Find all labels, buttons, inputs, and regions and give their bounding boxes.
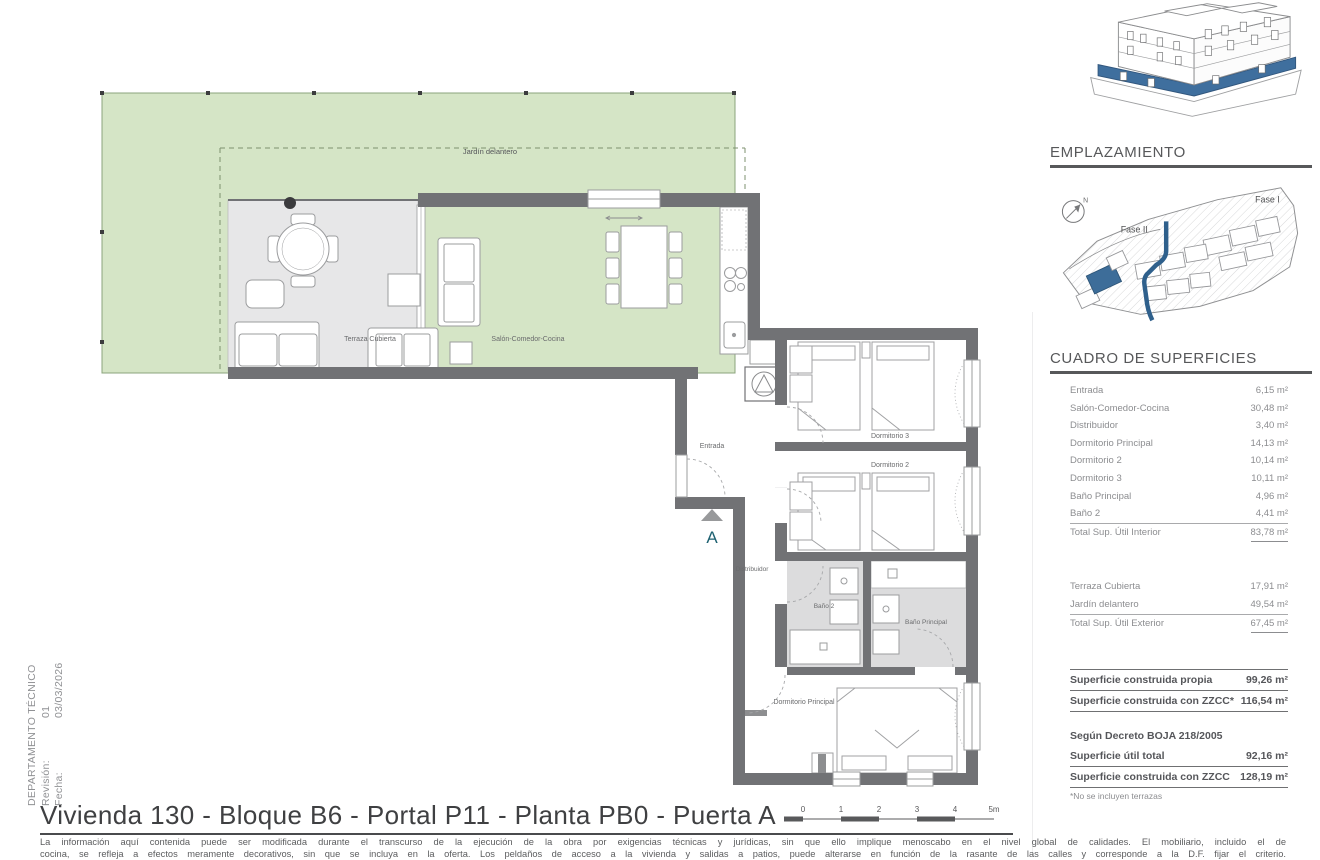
terrace-sofa — [235, 322, 319, 370]
stamp-revision: Revisión:01 — [40, 592, 54, 806]
surface-label: Entrada — [1070, 382, 1103, 400]
dorm3-furniture — [790, 342, 934, 430]
dorm2-furniture — [790, 473, 934, 550]
surface-label: Dormitorio 2 — [1070, 452, 1122, 470]
surface-value: 67,45 m² — [1251, 615, 1289, 634]
surface-label: Superficie útil total — [1070, 746, 1165, 766]
decreto-title: Según Decreto BOJA 218/2005 — [1070, 726, 1288, 746]
scale-tick: 1 — [839, 805, 844, 814]
superficies-title: CUADRO DE SUPERFICIES — [1050, 350, 1312, 374]
sidebar: EMPLAZAMIENTO — [1048, 0, 1314, 801]
surfaces-footnote: *No se incluyen terrazas — [1070, 791, 1288, 801]
surface-row: Dormitorio Principal14,13 m² — [1070, 435, 1288, 453]
content-divider — [1032, 312, 1033, 857]
revision-label: Revisión: — [40, 718, 54, 806]
page-title: Vivienda 130 - Bloque B6 - Portal P11 - … — [40, 800, 776, 831]
surface-value: 6,15 m² — [1256, 382, 1288, 400]
stamp-date: Fecha:03/03/2026 — [53, 592, 67, 806]
room-label-salon: Salón-Comedor-Cocina — [491, 336, 564, 343]
surface-label: Superficie construida con ZZCC — [1070, 767, 1230, 787]
surface-value: 10,14 m² — [1251, 452, 1289, 470]
scale-tick: 4 — [953, 805, 958, 814]
revision-stamp: DEPARTAMENTO TÉCNICO Revisión:01 Fecha:0… — [26, 592, 67, 806]
room-label-bano-principal: Baño Principal — [905, 619, 947, 626]
constructed-surface-block: Superficie construida propia99,26 m² Sup… — [1070, 669, 1288, 712]
date-label: Fecha: — [53, 718, 67, 806]
surface-label: Superficie construida con ZZCC* — [1070, 691, 1234, 711]
column-marker — [284, 197, 296, 209]
surface-label: Dormitorio 3 — [1070, 470, 1122, 488]
surface-label: Baño Principal — [1070, 488, 1131, 506]
kitchen-counter — [720, 207, 748, 354]
emplazamiento-title: EMPLAZAMIENTO — [1050, 144, 1312, 168]
site-map: N Fase I Fase II — [1048, 172, 1314, 340]
entrance-marker: A — [701, 509, 723, 547]
surface-row: Dormitorio 310,11 m² — [1070, 470, 1288, 488]
surface-value: 17,91 m² — [1251, 578, 1289, 596]
surface-value: 92,16 m² — [1246, 746, 1288, 766]
exterior-total-row: Total Sup. Útil Exterior67,45 m² — [1070, 614, 1288, 634]
dining-table — [606, 226, 682, 308]
surface-value: 30,48 m² — [1251, 400, 1289, 418]
scale-tick: 2 — [877, 805, 882, 814]
entrance-door-leaf — [676, 455, 687, 497]
interior-total-row: Total Sup. Útil Interior83,78 m² — [1070, 523, 1288, 543]
surface-label: Total Sup. Útil Interior — [1070, 524, 1161, 543]
disclaimer: La información aquí contenida puede ser … — [40, 836, 1286, 860]
title-rule — [40, 833, 1013, 835]
bathrooms — [787, 561, 966, 667]
room-label-distribuidor: Distribuidor — [736, 566, 770, 573]
room-label-terraza: Terraza Cubierta — [344, 336, 396, 343]
surface-label: Dormitorio Principal — [1070, 435, 1153, 453]
decreto-row: Superficie útil total92,16 m² — [1070, 746, 1288, 767]
surface-value: 99,26 m² — [1246, 670, 1288, 690]
disclaimer-line1: La información aquí contenida puede ser … — [40, 836, 1286, 848]
surface-row: Distribuidor3,40 m² — [1070, 417, 1288, 435]
revision-value: 01 — [40, 706, 52, 718]
surface-label: Baño 2 — [1070, 505, 1100, 523]
surface-label: Jardín delantero — [1070, 596, 1139, 614]
surface-label: Salón-Comedor-Cocina — [1070, 400, 1169, 418]
room-label-bano2: Baño 2 — [814, 603, 835, 610]
floor-plan: A Jardín delantero Terraza Cubierta Saló… — [100, 90, 1040, 805]
room-label-dormitorio2: Dormitorio 2 — [871, 462, 909, 469]
scale-tick: 0 — [801, 805, 806, 814]
constructed-row: Superficie construida propia99,26 m² — [1070, 670, 1288, 691]
fase2-label: Fase II — [1121, 224, 1148, 234]
surface-row: Dormitorio 210,14 m² — [1070, 452, 1288, 470]
disclaimer-line2: cocina, se refleja a efectos meramente d… — [40, 848, 1286, 860]
north-compass-icon: N — [1062, 198, 1088, 223]
surface-value: 4,96 m² — [1256, 488, 1288, 506]
stamp-department: DEPARTAMENTO TÉCNICO — [26, 592, 40, 806]
decreto-row: Superficie construida con ZZCC128,19 m² — [1070, 767, 1288, 788]
surface-label: Terraza Cubierta — [1070, 578, 1140, 596]
surface-value: 10,11 m² — [1251, 470, 1288, 488]
scale-bar: 0 1 2 3 4 5m — [782, 803, 1014, 829]
surface-value: 4,41 m² — [1256, 505, 1288, 523]
surfaces-table: Entrada6,15 m² Salón-Comedor-Cocina30,48… — [1070, 382, 1288, 801]
constructed-row: Superficie construida con ZZCC*116,54 m² — [1070, 691, 1288, 712]
room-label-entrada: Entrada — [700, 443, 725, 450]
building-3d-render — [1074, 0, 1316, 120]
surface-row: Baño Principal4,96 m² — [1070, 488, 1288, 506]
surface-label: Distribuidor — [1070, 417, 1118, 435]
north-label: N — [1083, 198, 1088, 205]
fase1-label: Fase I — [1255, 195, 1280, 205]
surface-row: Terraza Cubierta17,91 m² — [1070, 578, 1288, 596]
surface-value: 3,40 m² — [1256, 417, 1288, 435]
date-value: 03/03/2026 — [53, 662, 65, 718]
surface-value: 49,54 m² — [1251, 596, 1289, 614]
surface-row: Jardín delantero49,54 m² — [1070, 596, 1288, 614]
surface-value: 128,19 m² — [1240, 767, 1288, 787]
surface-row: Entrada6,15 m² — [1070, 382, 1288, 400]
surface-label: Superficie construida propia — [1070, 670, 1212, 690]
scale-labels: 0 1 2 3 4 5m — [801, 805, 1000, 814]
room-label-dormitorio-principal: Dormitorio Principal — [773, 699, 835, 706]
surface-value: 14,13 m² — [1251, 435, 1289, 453]
entrance-letter: A — [706, 528, 718, 547]
scale-tick: 3 — [915, 805, 920, 814]
scale-tick: 5m — [988, 805, 999, 814]
surface-value: 116,54 m² — [1241, 691, 1288, 711]
terrace-side-table — [246, 280, 284, 308]
room-label-jardin: Jardín delantero — [463, 147, 517, 156]
surface-label: Total Sup. Útil Exterior — [1070, 615, 1164, 634]
room-label-dormitorio3: Dormitorio 3 — [871, 433, 909, 440]
surface-row: Salón-Comedor-Cocina30,48 m² — [1070, 400, 1288, 418]
surface-value: 83,78 m² — [1251, 524, 1289, 543]
surface-row: Baño 24,41 m² — [1070, 505, 1288, 523]
